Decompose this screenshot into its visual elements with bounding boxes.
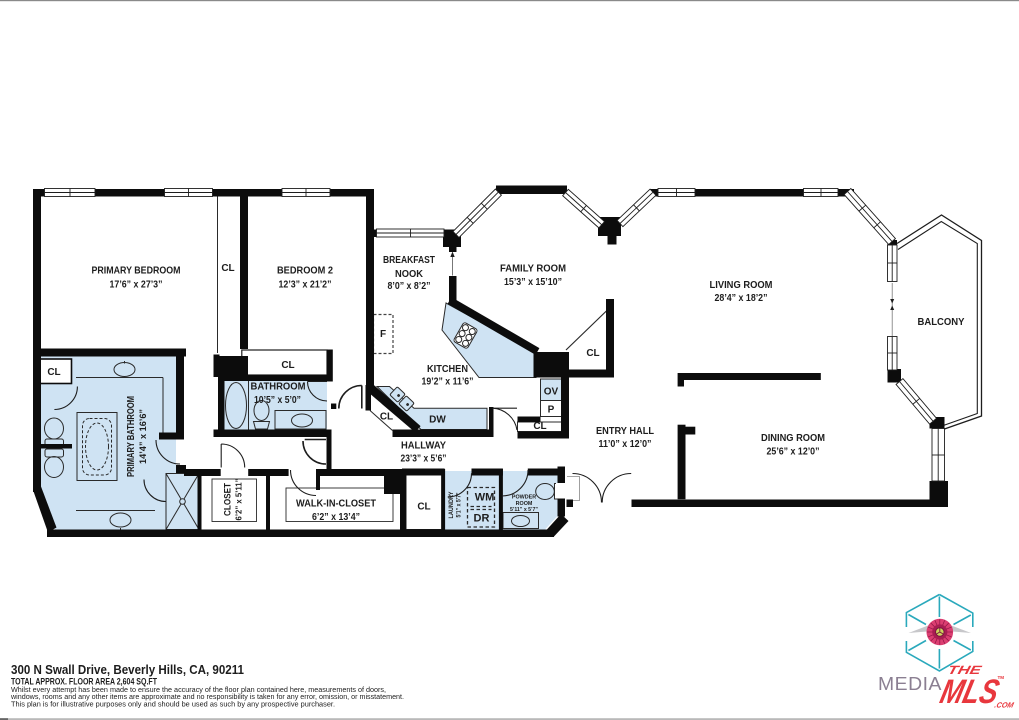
svg-text:Whilst every attempt has been: Whilst every attempt has been made to en… [11,687,386,694]
svg-text:5’1” x 5’7”: 5’1” x 5’7” [456,493,463,518]
svg-text:LIVING ROOM: LIVING ROOM [710,279,773,291]
svg-text:CLOSET: CLOSET [223,483,234,516]
svg-text:8’0” x 8’2”: 8’0” x 8’2” [388,281,431,292]
svg-text:NOOK: NOOK [395,268,423,280]
svg-text:windows, rooms and any other i: windows, rooms and any other items are a… [10,694,404,701]
svg-text:15’3” x 15’10”: 15’3” x 15’10” [504,277,562,288]
svg-text:WALK-IN-CLOSET: WALK-IN-CLOSET [296,498,377,510]
svg-text:DINING ROOM: DINING ROOM [761,432,825,444]
svg-text:POWDER: POWDER [512,495,536,501]
svg-text:11’0” x 12’0”: 11’0” x 12’0” [599,439,652,450]
svg-text:6’2” x 5’11”: 6’2” x 5’11” [234,479,244,521]
svg-text:28’4” x 18’2”: 28’4” x 18’2” [715,293,768,304]
svg-text:ENTRY HALL: ENTRY HALL [596,425,655,437]
svg-text:PRIMARY BATHROOM: PRIMARY BATHROOM [125,396,137,477]
svg-text:14’4” x 16’6”: 14’4” x 16’6” [138,409,148,464]
svg-text:This plan is for illustrative: This plan is for illustrative purposes o… [11,702,335,709]
svg-text:P: P [548,405,555,416]
svg-text:25’6” x 12’0”: 25’6” x 12’0” [767,447,820,458]
svg-text:MLS: MLS [937,673,1003,710]
svg-text:DW: DW [429,415,446,426]
svg-text:WM: WM [475,492,495,504]
svg-text:CL: CL [281,360,294,371]
svg-text:17’6” x 27’3”: 17’6” x 27’3” [110,280,163,291]
svg-text:BALCONY: BALCONY [918,316,965,328]
svg-text:KITCHEN: KITCHEN [427,363,468,375]
svg-text:BATHROOM: BATHROOM [251,381,306,393]
svg-text:5’11” x 5’7”: 5’11” x 5’7” [510,507,538,513]
svg-text:10’5” x 5’0”: 10’5” x 5’0” [254,395,301,406]
svg-text:LAUNDRY: LAUNDRY [448,491,455,519]
svg-text:BREAKFAST: BREAKFAST [383,254,435,266]
svg-text:TOTAL APPROX. FLOOR AREA 2,604: TOTAL APPROX. FLOOR AREA 2,604 SQ.FT [11,677,157,687]
svg-text:OV: OV [544,387,559,398]
svg-text:CL: CL [380,412,393,423]
svg-text:CL: CL [417,502,430,513]
svg-text:CL: CL [586,348,599,359]
svg-text:BEDROOM 2: BEDROOM 2 [277,265,333,277]
svg-text:CL: CL [533,421,546,432]
svg-text:6’2” x 13’4”: 6’2” x 13’4” [312,512,360,523]
svg-text:MEDIA: MEDIA [878,673,942,694]
svg-text:.COM: .COM [994,701,1016,710]
svg-text:HALLWAY: HALLWAY [401,440,446,452]
svg-text:300 N Swall Drive, Beverly Hil: 300 N Swall Drive, Beverly Hills, CA, 90… [11,663,244,677]
svg-text:F: F [380,329,386,340]
svg-text:CL: CL [221,263,234,274]
svg-text:23’3” x 5’6”: 23’3” x 5’6” [401,454,447,465]
svg-text:19’2” x 11’6”: 19’2” x 11’6” [422,377,474,388]
svg-text:12’3” x 21’2”: 12’3” x 21’2” [279,280,332,291]
svg-text:DR: DR [474,513,490,525]
svg-text:PRIMARY BEDROOM: PRIMARY BEDROOM [92,265,181,277]
svg-text:TM: TM [998,675,1005,680]
svg-text:CL: CL [47,367,60,378]
svg-text:FAMILY ROOM: FAMILY ROOM [500,263,566,275]
